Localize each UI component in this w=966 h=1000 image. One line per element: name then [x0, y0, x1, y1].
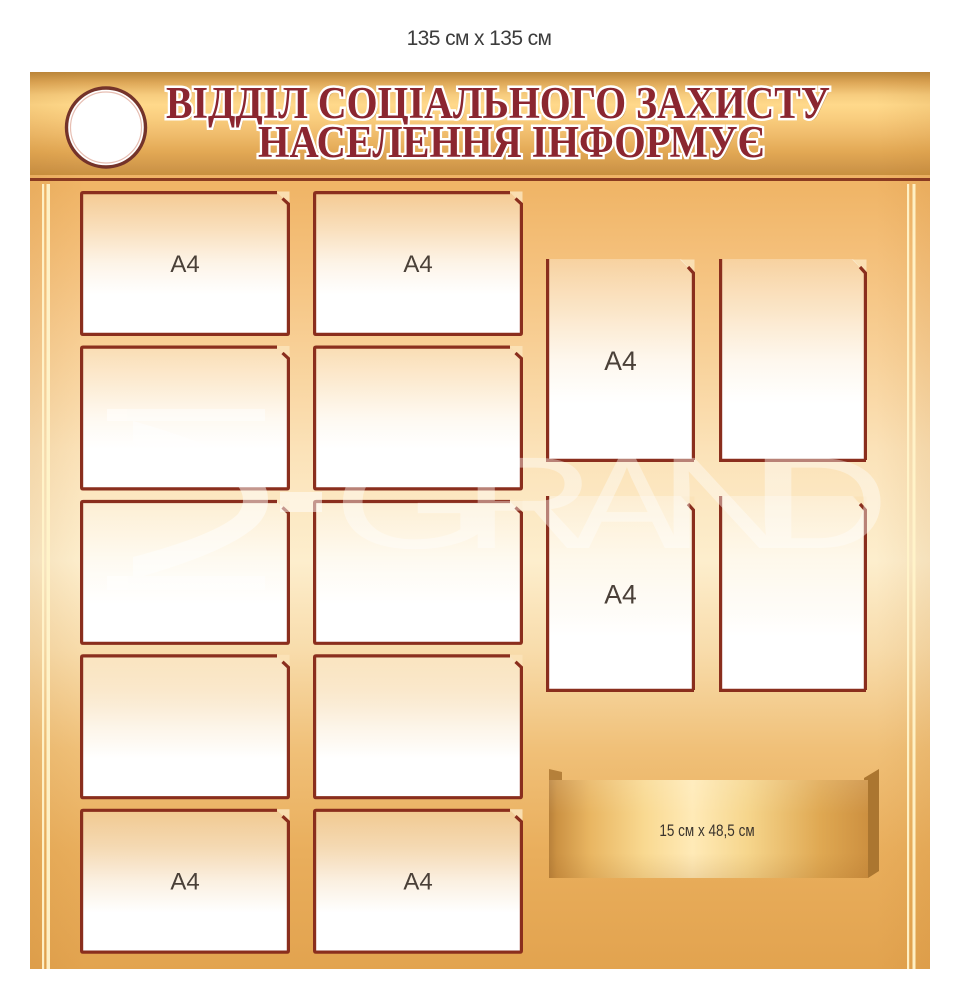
svg-text:А4: А4	[170, 251, 199, 278]
svg-text:А4: А4	[604, 580, 636, 610]
svg-text:А4: А4	[403, 251, 432, 278]
svg-text:А4: А4	[604, 346, 636, 376]
svg-text:D: D	[760, 430, 889, 576]
svg-text:НАСЕЛЕННЯ ІНФОРМУЄ: НАСЕЛЕННЯ ІНФОРМУЄ	[258, 117, 765, 167]
svg-text:15 см x 48,5 см: 15 см x 48,5 см	[659, 822, 754, 841]
svg-text:А4: А4	[170, 869, 199, 896]
svg-text:А4: А4	[403, 869, 432, 896]
